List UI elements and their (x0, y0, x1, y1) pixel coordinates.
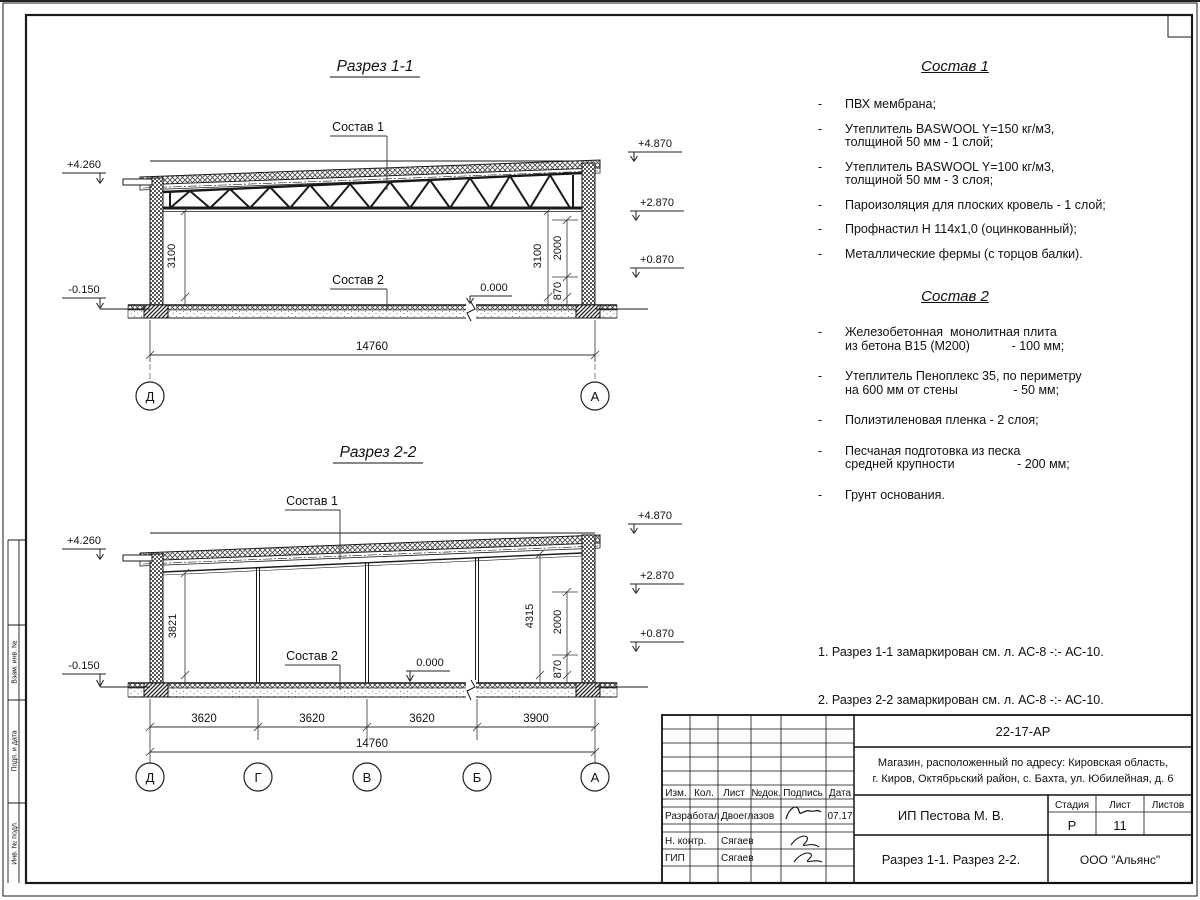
elev-4260: +4.260 (67, 535, 101, 547)
note-line-2: 2. Разрез 2-2 замаркирован см. л. АС-8 -… (818, 692, 1104, 708)
sheet-label: Лист (1109, 800, 1131, 811)
section-1-1: Разрез 1-1 (62, 58, 684, 410)
axis-bubble-d: Д (146, 389, 155, 404)
item-text: Песчаная подготовка из песка (845, 445, 1070, 459)
sostav1-title: Состав 1 (895, 58, 1015, 75)
signature-razrabotal (786, 807, 821, 819)
name-syagaev-2: Сягаев (721, 853, 754, 864)
object-address-line2: г. Киров, Октябрьский район, с. Бахта, у… (873, 773, 1174, 785)
section2-sostav2-label: Состав 2 (286, 649, 338, 663)
bullet-dash: - (818, 199, 845, 213)
bullet-dash: - (818, 98, 845, 112)
list-item: - Пароизоляция для плоских кровель - 1 с… (818, 199, 1178, 213)
axis-bubble-a: А (591, 770, 600, 785)
item-text: Грунт основания. (845, 489, 945, 503)
item-text: Металлические фермы (с торцов балки). (845, 248, 1083, 262)
section2-axes: Д Г В Б А (136, 763, 609, 791)
elev-0870: +0.870 (640, 628, 674, 640)
floor (100, 680, 648, 700)
row-nkontr: Н. контр. (665, 836, 706, 847)
row-razrabotal: Разработал (665, 810, 720, 822)
bullet-dash: - (818, 223, 845, 237)
sheet-title: Разрез 1-1. Разрез 2-2. (882, 852, 1020, 867)
dim-3620-3: 3620 (409, 713, 435, 725)
dim-2000: 2000 (552, 610, 564, 634)
list-item: - Железобетонная монолитная плитаиз бето… (818, 326, 1178, 353)
section2-title: Разрез 2-2 (340, 444, 417, 461)
section2-vertical-dims (181, 550, 578, 683)
item-text: толщиной 50 мм - 3 слоя; (845, 174, 1054, 188)
col-data: Дата (829, 788, 852, 799)
col-ndok: №док. (751, 788, 780, 799)
left-stamp-labels: Взам. инв. № Подп. и дата Инв. № подл. (12, 640, 19, 864)
floor (100, 302, 648, 321)
sostav2-title: Состав 2 (895, 288, 1015, 305)
dim-14760: 14760 (356, 738, 388, 750)
sheets-label: Листов (1152, 800, 1185, 811)
elev-2870: +2.870 (640, 570, 674, 582)
bullet-dash: - (818, 370, 845, 397)
item-text: Утеплитель BASWOOL Y=100 кг/м3, (845, 161, 1054, 175)
section1-vertical-dims (181, 207, 578, 305)
dim-870: 870 (552, 660, 564, 678)
col-podpis: Подпись (783, 788, 823, 799)
row-gip: ГИП (665, 853, 685, 864)
elev-4870: +4.870 (638, 138, 672, 150)
axis-bubble-d: Д (146, 770, 155, 785)
list-item: - ПВХ мембрана; (818, 98, 1178, 112)
list-item: - Песчаная подготовка из пескасредней кр… (818, 445, 1178, 472)
bullet-dash: - (818, 489, 845, 503)
wall-right (582, 163, 595, 305)
section2-bottom-dims (146, 699, 599, 763)
bullet-dash: - (818, 123, 845, 150)
note-line-1: 1. Разрез 1-1 замаркирован см. л. АС-8 -… (818, 644, 1104, 660)
sostav2-list: - Железобетонная монолитная плитаиз бето… (818, 326, 1178, 519)
stage-label: Стадия (1055, 800, 1089, 811)
wall-left (150, 178, 163, 305)
stage-value: Р (1068, 818, 1077, 833)
item-text: толщиной 50 мм - 1 слой; (845, 136, 1054, 150)
list-item: - Полиэтиленовая пленка - 2 слоя; (818, 414, 1178, 428)
item-text: Утеплитель BASWOOL Y=150 кг/м3, (845, 123, 1054, 137)
elev-4260: +4.260 (67, 159, 101, 171)
elev-0870: +0.870 (640, 254, 674, 266)
bullet-dash: - (818, 414, 845, 428)
org-name: ООО "Альянс" (1080, 853, 1160, 867)
list-item: - Утеплитель BASWOOL Y=150 кг/м3,толщино… (818, 123, 1178, 150)
col-list: Лист (723, 788, 745, 799)
item-text: ПВХ мембрана; (845, 98, 936, 112)
list-item: - Профнастил Н 114х1,0 (оцинкованный); (818, 223, 1178, 237)
col-kol: Кол. (694, 788, 714, 799)
doc-code: 22-17-АР (996, 724, 1051, 739)
item-text: из бетона В15 (М200) - 100 мм; (845, 340, 1064, 354)
item-text: Утеплитель Пеноплекс 35, по периметру (845, 370, 1082, 384)
elev-m0150: -0.150 (68, 660, 99, 672)
date-0717: 07.17 (827, 811, 852, 822)
item-text: средней крупности - 200 мм; (845, 458, 1070, 472)
section2-sostav1-label: Состав 1 (286, 494, 338, 508)
list-item: - Металлические фермы (с торцов балки). (818, 248, 1178, 262)
bullet-dash: - (818, 445, 845, 472)
axis-bubble-g: Г (254, 770, 261, 785)
axis-bubble-b: Б (473, 770, 482, 785)
wall-right (582, 535, 595, 683)
item-text: Пароизоляция для плоских кровель - 1 сло… (845, 199, 1106, 213)
bullet-dash: - (818, 161, 845, 188)
signature-gip (794, 853, 822, 862)
sheet-value: 11 (1113, 818, 1127, 833)
columns (257, 557, 479, 683)
dim-3821: 3821 (167, 614, 179, 638)
bullet-dash: - (818, 326, 845, 353)
dim-2000: 2000 (552, 236, 564, 260)
section-2-2: Разрез 2-2 (62, 444, 684, 791)
dim-3620-1: 3620 (191, 713, 217, 725)
dim-870: 870 (552, 282, 564, 300)
elev-4870: +4.870 (638, 510, 672, 522)
dim-3900: 3900 (523, 713, 549, 725)
corner-box (1168, 15, 1192, 37)
stamp-inv-label: Инв. № подл. (12, 821, 19, 865)
axis-bubble-a: А (591, 389, 600, 404)
elev-m0150: -0.150 (68, 284, 99, 296)
bullet-dash: - (818, 248, 845, 262)
sostav1-list: - ПВХ мембрана; - Утеплитель BASWOOL Y=1… (818, 98, 1178, 272)
col-izm: Изм. (665, 788, 686, 799)
item-text: на 600 мм от стены - 50 мм; (845, 384, 1082, 398)
stamp-podp-label: Подп. и дата (12, 730, 19, 771)
signature-nkontr (791, 836, 819, 847)
name-dvoeglazov: Двоеглазов (721, 811, 774, 822)
canopy-left (123, 555, 152, 561)
item-text: Полиэтиленовая пленка - 2 слоя; (845, 414, 1039, 428)
section1-title: Разрез 1-1 (337, 58, 414, 75)
dim-3100-left: 3100 (166, 244, 178, 268)
dim-3620-2: 3620 (299, 713, 325, 725)
stamp-vzam-label: Взам. инв. № (12, 640, 19, 683)
elev-0000: 0.000 (480, 282, 508, 294)
section1-sostav1-label: Состав 1 (332, 120, 384, 134)
wall-left (150, 554, 163, 683)
notes: 1. Разрез 1-1 замаркирован см. л. АС-8 -… (818, 612, 1104, 724)
dim-3100-right: 3100 (532, 244, 544, 268)
item-text: Железобетонная монолитная плита (845, 326, 1064, 340)
elev-2870: +2.870 (640, 197, 674, 209)
item-text: Профнастил Н 114х1,0 (оцинкованный); (845, 223, 1077, 237)
list-item: - Утеплитель BASWOOL Y=100 кг/м3,толщино… (818, 161, 1178, 188)
client-name: ИП Пестова М. В. (898, 808, 1004, 823)
section1-axes: Д А (136, 382, 609, 410)
canopy-left (123, 179, 152, 185)
list-item: - Утеплитель Пеноплекс 35, по периметрун… (818, 370, 1178, 397)
object-address-line1: Магазин, расположенный по адресу: Кировс… (878, 757, 1168, 769)
elev-0000: 0.000 (416, 657, 444, 669)
list-item: - Грунт основания. (818, 489, 1178, 503)
axis-bubble-v: В (363, 770, 372, 785)
dim-14760: 14760 (356, 341, 388, 353)
dim-4315: 4315 (524, 604, 536, 628)
section1-sostav2-label: Состав 2 (332, 273, 384, 287)
name-syagaev-1: Сягаев (721, 836, 754, 847)
